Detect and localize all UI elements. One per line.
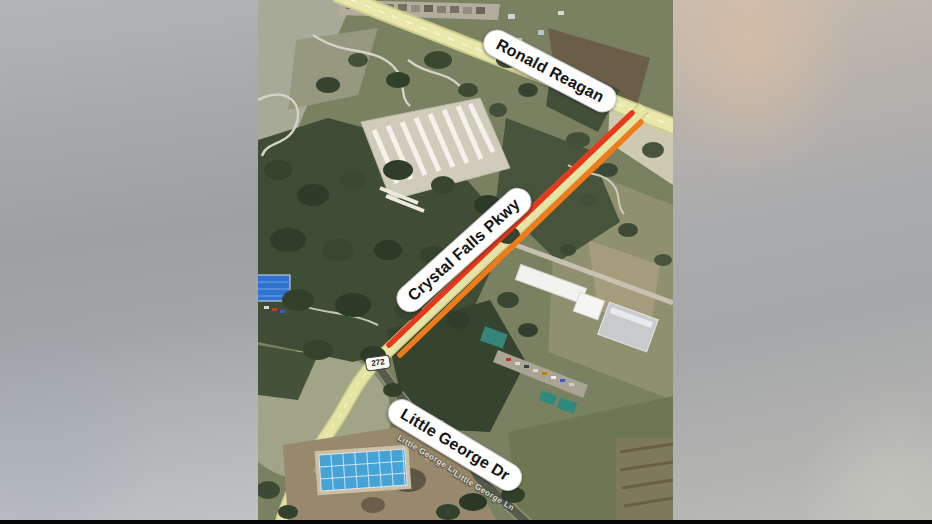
blurred-backdrop-right bbox=[673, 0, 932, 524]
aerial-map-image: Little George Ln Little George Ln 272 Ro… bbox=[258, 0, 673, 524]
news-map-graphic: Little George Ln Little George Ln 272 Ro… bbox=[0, 0, 932, 524]
solar-panel-array bbox=[315, 445, 412, 495]
blurred-backdrop-left bbox=[0, 0, 258, 524]
bottom-black-strip bbox=[0, 520, 932, 524]
